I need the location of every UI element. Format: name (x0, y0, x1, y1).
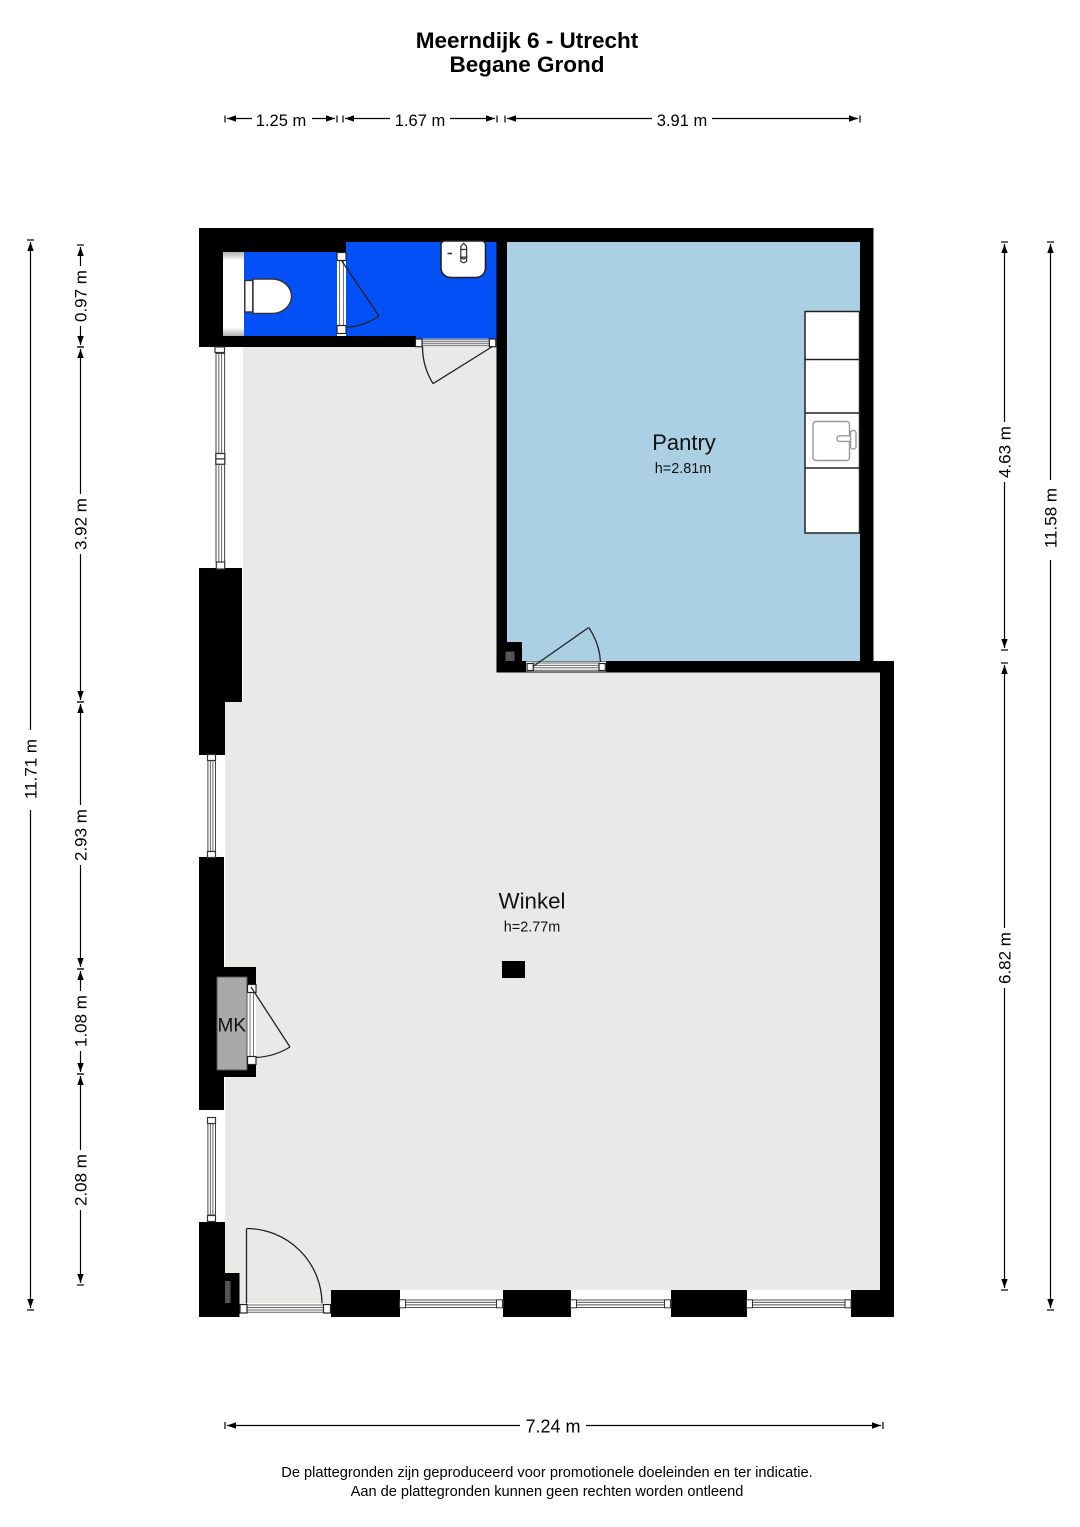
svg-text:1.67 m: 1.67 m (395, 112, 445, 130)
svg-text:De plattegronden zijn geproduc: De plattegronden zijn geproduceerd voor … (281, 1465, 812, 1481)
svg-text:2.08 m: 2.08 m (72, 1154, 91, 1206)
svg-text:1.08 m: 1.08 m (72, 995, 91, 1047)
svg-text:1.25 m: 1.25 m (256, 112, 306, 130)
svg-text:h=2.77m: h=2.77m (504, 920, 560, 936)
svg-text:4.63 m: 4.63 m (996, 426, 1015, 478)
svg-text:11.71 m: 11.71 m (22, 739, 41, 799)
svg-text:Winkel: Winkel (499, 889, 566, 914)
svg-text:MK: MK (218, 1016, 247, 1037)
svg-text:0.97 m: 0.97 m (72, 270, 91, 322)
svg-text:h=2.81m: h=2.81m (655, 461, 711, 477)
svg-text:Aan de plattegronden kunnen ge: Aan de plattegronden kunnen geen rechten… (351, 1484, 744, 1500)
svg-text:3.91 m: 3.91 m (657, 112, 707, 130)
svg-text:7.24 m: 7.24 m (525, 1417, 580, 1437)
svg-text:Begane Grond: Begane Grond (449, 52, 604, 77)
svg-text:11.58 m: 11.58 m (1042, 488, 1061, 548)
svg-text:6.82 m: 6.82 m (996, 932, 1015, 984)
svg-text:2.93 m: 2.93 m (72, 809, 91, 861)
svg-text:3.92 m: 3.92 m (72, 498, 91, 550)
svg-text:Meerndijk 6 - Utrecht: Meerndijk 6 - Utrecht (416, 28, 639, 53)
svg-text:Pantry: Pantry (652, 430, 716, 455)
